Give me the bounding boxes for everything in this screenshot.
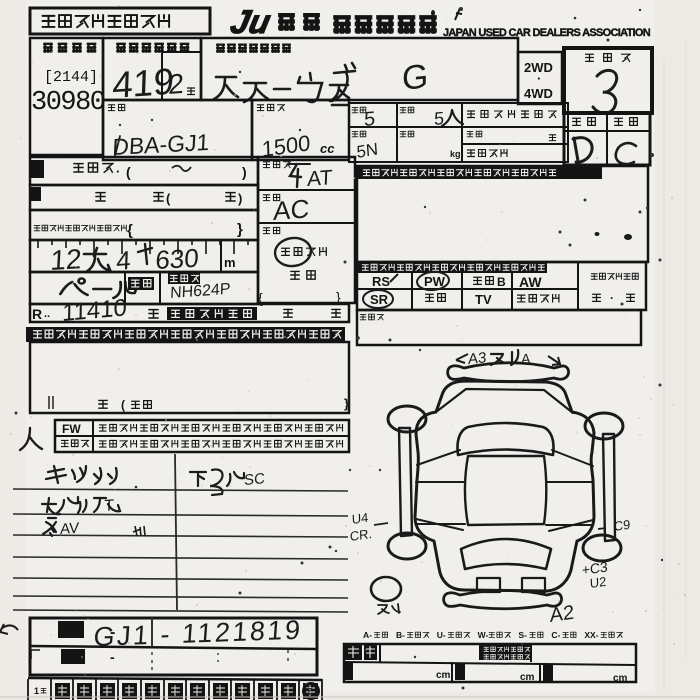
svg-text:11410: 11410 xyxy=(62,294,127,327)
svg-text:U2: U2 xyxy=(590,574,607,591)
svg-text:W-: W- xyxy=(478,630,489,640)
svg-text:..: .. xyxy=(44,308,50,320)
svg-text:30980: 30980 xyxy=(31,88,105,118)
svg-text:C-: C- xyxy=(551,630,560,640)
svg-text:A: A xyxy=(521,350,531,367)
svg-text:AC: AC xyxy=(273,193,310,226)
svg-text:A3: A3 xyxy=(468,349,487,368)
svg-text:CR.: CR. xyxy=(350,526,373,544)
svg-text:AW: AW xyxy=(519,274,542,290)
svg-text:-: - xyxy=(110,649,115,665)
svg-text:G: G xyxy=(402,57,428,98)
svg-text:(: ( xyxy=(166,191,171,206)
svg-text:cm: cm xyxy=(436,670,451,681)
svg-text:A-: A- xyxy=(363,630,372,640)
svg-text:T: T xyxy=(104,496,115,515)
svg-text:): ) xyxy=(242,164,247,180)
svg-text:Ju: Ju xyxy=(227,4,273,41)
svg-text:A2: A2 xyxy=(549,602,574,627)
svg-text:SC: SC xyxy=(244,470,265,489)
svg-text:U-: U- xyxy=(437,630,446,640)
svg-text:RS: RS xyxy=(372,274,390,289)
svg-text:SR: SR xyxy=(370,292,389,307)
svg-text:B-: B- xyxy=(396,630,405,640)
svg-text:}: } xyxy=(344,396,349,411)
svg-text:S-: S- xyxy=(518,630,527,640)
svg-text:}: } xyxy=(336,289,341,305)
svg-text:U4: U4 xyxy=(352,510,369,527)
svg-text:{: { xyxy=(127,222,133,239)
svg-text:[2144]: [2144] xyxy=(44,69,98,86)
svg-text:m: m xyxy=(224,255,236,270)
svg-text:cc: cc xyxy=(320,141,335,156)
svg-text:630: 630 xyxy=(155,243,200,275)
svg-text:(: ( xyxy=(121,398,125,412)
svg-text:C9: C9 xyxy=(614,517,631,534)
svg-text:FW: FW xyxy=(62,422,81,436)
svg-text:DBA-GJ1: DBA-GJ1 xyxy=(112,129,210,160)
svg-text:R: R xyxy=(32,306,42,322)
svg-text:·: · xyxy=(116,164,120,179)
svg-text:1: 1 xyxy=(34,686,39,696)
svg-text:·: · xyxy=(537,71,541,86)
svg-text:2: 2 xyxy=(168,68,185,100)
svg-text:AV: AV xyxy=(60,520,79,538)
svg-text:): ) xyxy=(238,191,242,206)
svg-text:5N: 5N xyxy=(356,139,379,162)
svg-text:4WD: 4WD xyxy=(524,86,553,101)
svg-text:·: · xyxy=(610,291,614,305)
svg-text:B: B xyxy=(497,275,506,289)
svg-text:(: ( xyxy=(126,164,131,180)
svg-text:}: } xyxy=(237,221,243,238)
svg-text:TV: TV xyxy=(475,292,492,307)
svg-text:XX-: XX- xyxy=(584,630,598,640)
svg-text:cm: cm xyxy=(520,672,535,683)
svg-text:cm: cm xyxy=(613,673,628,684)
svg-text:kg: kg xyxy=(450,149,461,159)
svg-text:AT: AT xyxy=(307,166,333,191)
